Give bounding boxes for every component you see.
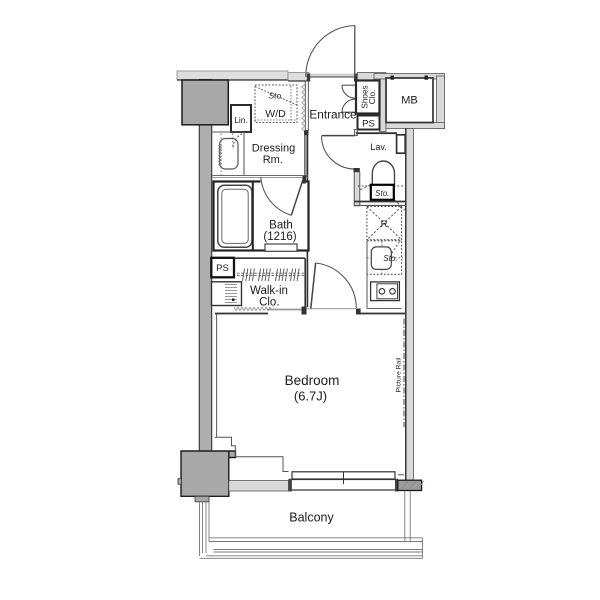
svg-text:MB: MB bbox=[401, 95, 418, 107]
svg-text:Sto.: Sto. bbox=[375, 189, 389, 198]
svg-text:PS: PS bbox=[362, 119, 375, 130]
svg-text:Balcony: Balcony bbox=[289, 511, 334, 525]
svg-text:Sto.: Sto. bbox=[269, 91, 284, 101]
svg-text:Bath: Bath bbox=[269, 220, 293, 232]
svg-text:R: R bbox=[381, 219, 388, 230]
svg-text:W/D: W/D bbox=[265, 108, 286, 120]
svg-text:(1216): (1216) bbox=[263, 231, 296, 243]
svg-text:Entrance: Entrance bbox=[309, 108, 357, 122]
svg-text:Rm.: Rm. bbox=[263, 154, 283, 166]
svg-text:Bedroom: Bedroom bbox=[285, 373, 340, 388]
svg-text:Sto.: Sto. bbox=[383, 254, 397, 263]
svg-text:Walk-in: Walk-in bbox=[250, 285, 288, 297]
svg-text:Lin.: Lin. bbox=[234, 115, 248, 125]
svg-text:(6.7J): (6.7J) bbox=[294, 389, 327, 404]
svg-text:Dressing: Dressing bbox=[252, 143, 295, 155]
svg-text:PS: PS bbox=[216, 263, 229, 274]
svg-text:Lav.: Lav. bbox=[370, 142, 386, 152]
svg-text:Clo.: Clo. bbox=[368, 90, 377, 105]
svg-text:Picture Rail: Picture Rail bbox=[396, 357, 403, 392]
